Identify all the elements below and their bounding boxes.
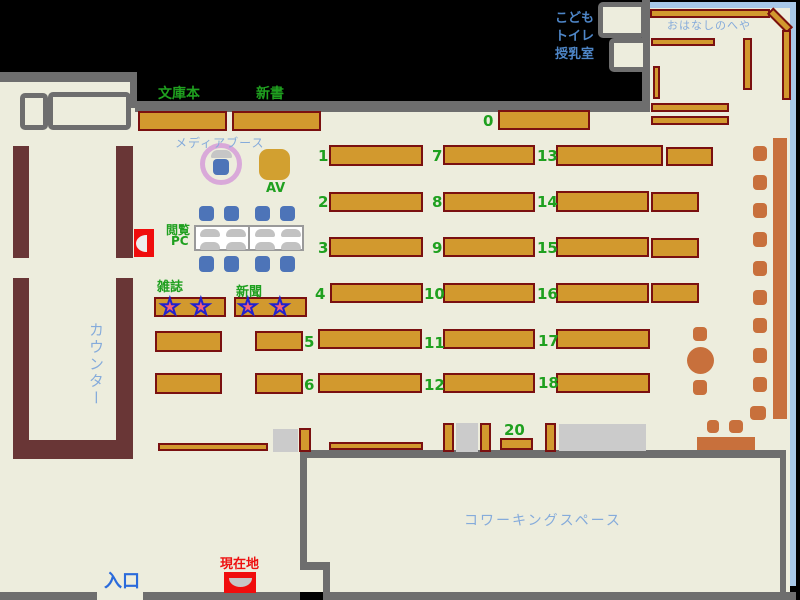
bookshelf-15 [556,237,649,257]
star-icon: ★ [270,296,290,319]
chair-icon [753,348,767,363]
window-counter [773,138,787,419]
shelf-number-18: 18 [538,374,559,392]
bookshelf-12 [443,373,535,393]
bookshelf [138,111,227,131]
bookshelf [651,192,699,212]
bookshelf [651,283,699,303]
bookshelf-4 [330,283,423,303]
reading-chair-icon [280,256,295,272]
bookshelf [329,442,423,450]
bookshelf [666,147,713,166]
chair-icon [753,318,767,333]
bookshelf-13 [556,145,663,166]
label-toilet: トイレ [548,25,594,44]
label-entrance: 入口 [104,567,140,593]
shelf-number-7: 7 [432,147,442,165]
reading-seat-icon [226,229,246,237]
shelf-number-5: 5 [304,333,314,351]
bookshelf-11 [443,329,535,349]
fixture-block [559,424,646,451]
service-counter [13,146,29,258]
bookshelf-17 [556,329,650,349]
label-av: AV [266,181,285,196]
shelf-number-4: 4 [315,285,325,303]
chair-icon [707,420,719,433]
wall [0,72,137,82]
bookshelf-3 [329,237,423,257]
bookshelf-18 [556,373,650,393]
label-pc: PC [171,234,189,248]
label-zasshi: 雑誌 [157,276,183,295]
wall [300,452,307,566]
star-icon: ★ [238,296,258,319]
bookshelf-9 [443,237,535,257]
label-shinsho: 新書 [256,83,284,103]
chair-icon [753,290,767,305]
bookshelf-7 [443,145,535,165]
reading-seat-icon [255,242,275,250]
reading-seat-icon [200,242,220,250]
bookshelf [651,116,729,125]
window-glass [650,2,796,8]
shelf-number-10: 10 [424,285,445,303]
bookshelf [232,111,321,131]
reading-seat-icon [281,229,301,237]
bookshelf [651,38,715,46]
wall [0,592,97,600]
shelf-number-13: 13 [537,147,558,165]
bookshelf-2 [329,192,423,212]
label-counter: カウンター [86,322,107,407]
room-box [20,93,48,130]
bookshelf [651,103,729,112]
shelf-number-2: 2 [318,193,328,211]
service-counter [13,278,29,459]
label-coworking: コワーキングスペース [464,510,622,530]
bookshelf-20 [500,438,533,450]
label-genzaichi: 現在地 [220,553,259,572]
bookshelf [545,423,556,452]
wall [323,592,796,600]
shelf-number-20: 20 [504,421,525,439]
bookshelf-6 [318,373,422,393]
chair-icon [753,232,767,247]
room-box [48,92,131,130]
library-floor-map: 017132814391541016511176121820★★★★文庫本新書メ… [0,0,800,600]
bookshelf [782,30,791,100]
star-icon: ★ [191,296,211,319]
bookshelf [480,423,491,452]
bookshelf [155,331,222,352]
service-counter [116,278,133,459]
reading-chair-icon [199,256,214,272]
chair-icon [753,146,767,161]
round-table [687,347,714,374]
bookshelf [158,443,268,451]
chair-icon [753,261,767,276]
fixture-block [273,429,298,452]
bookshelf-16 [556,283,649,303]
service-counter [116,146,133,258]
reading-seat-icon [281,242,301,250]
table [697,437,755,450]
shelf-number-1: 1 [318,147,328,165]
bookshelf-8 [443,192,535,212]
label-bunkobon: 文庫本 [158,83,200,103]
shelf-number-9: 9 [432,239,442,257]
av-station [259,149,290,180]
chair-icon [729,420,743,433]
chair-icon [753,377,767,392]
bookshelf [653,66,660,99]
reading-chair-icon [199,206,214,221]
bookshelf [443,423,454,452]
floor-area [97,592,143,600]
shelf-number-17: 17 [538,332,559,350]
room-box [598,2,646,38]
label-ohanashi: おはなしのへや [667,17,751,33]
fixture-block [456,423,478,452]
shelf-number-8: 8 [432,193,442,211]
label-nursing: 授乳室 [548,43,594,62]
reading-table-divider [248,225,250,251]
reading-seat-icon [226,242,246,250]
reading-chair-icon [255,256,270,272]
shelf-number-14: 14 [537,193,558,211]
bookshelf [155,373,222,394]
star-icon: ★ [160,296,180,319]
bookshelf [743,38,752,90]
bookshelf-0 [498,110,590,130]
chair-icon [753,203,767,218]
label-kodomo: こども [548,7,594,26]
shelf-number-15: 15 [537,239,558,257]
chair-icon [693,327,707,341]
shelf-number-6: 6 [304,376,314,394]
service-counter [13,440,133,459]
shelf-number-11: 11 [424,334,445,352]
label-media-booth: メディアブース [175,134,265,151]
bookshelf [651,238,699,258]
bookshelf-14 [556,191,649,212]
reading-seat-icon [255,229,275,237]
bookshelf [255,373,303,394]
chair-icon [693,380,707,395]
reading-seat-icon [200,229,220,237]
wall [780,452,786,597]
bookshelf-10 [443,283,535,303]
room-box [609,38,648,72]
chair-icon [753,175,767,190]
shelf-number-0: 0 [483,112,493,130]
chair-icon [750,406,766,420]
reading-chair-icon [255,206,270,221]
reading-chair-icon [280,206,295,221]
shelf-number-16: 16 [537,285,558,303]
media-booth-seat-icon [213,159,229,175]
bookshelf [299,428,311,452]
wall [143,592,300,600]
shelf-number-3: 3 [318,239,328,257]
bookshelf-1 [329,145,423,166]
media-booth-screen-icon [211,150,232,158]
reading-chair-icon [224,206,239,221]
bookshelf-5 [318,329,422,349]
reading-chair-icon [224,256,239,272]
bookshelf [255,331,303,351]
shelf-number-12: 12 [424,376,445,394]
